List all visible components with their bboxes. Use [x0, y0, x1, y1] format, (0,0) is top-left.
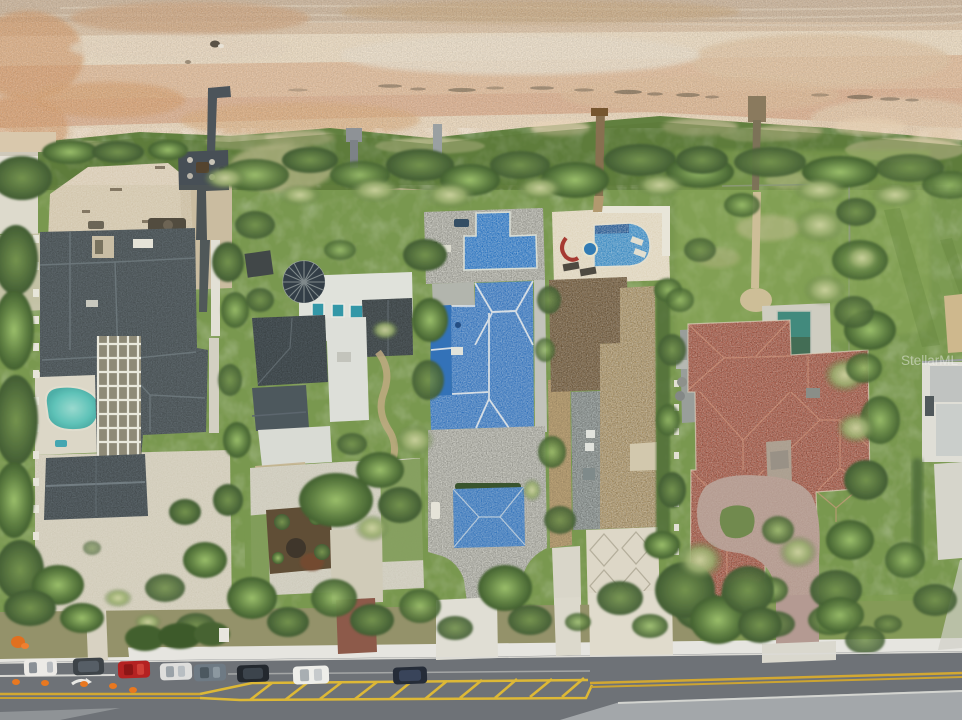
svg-text:StellarML: StellarML [901, 353, 959, 368]
